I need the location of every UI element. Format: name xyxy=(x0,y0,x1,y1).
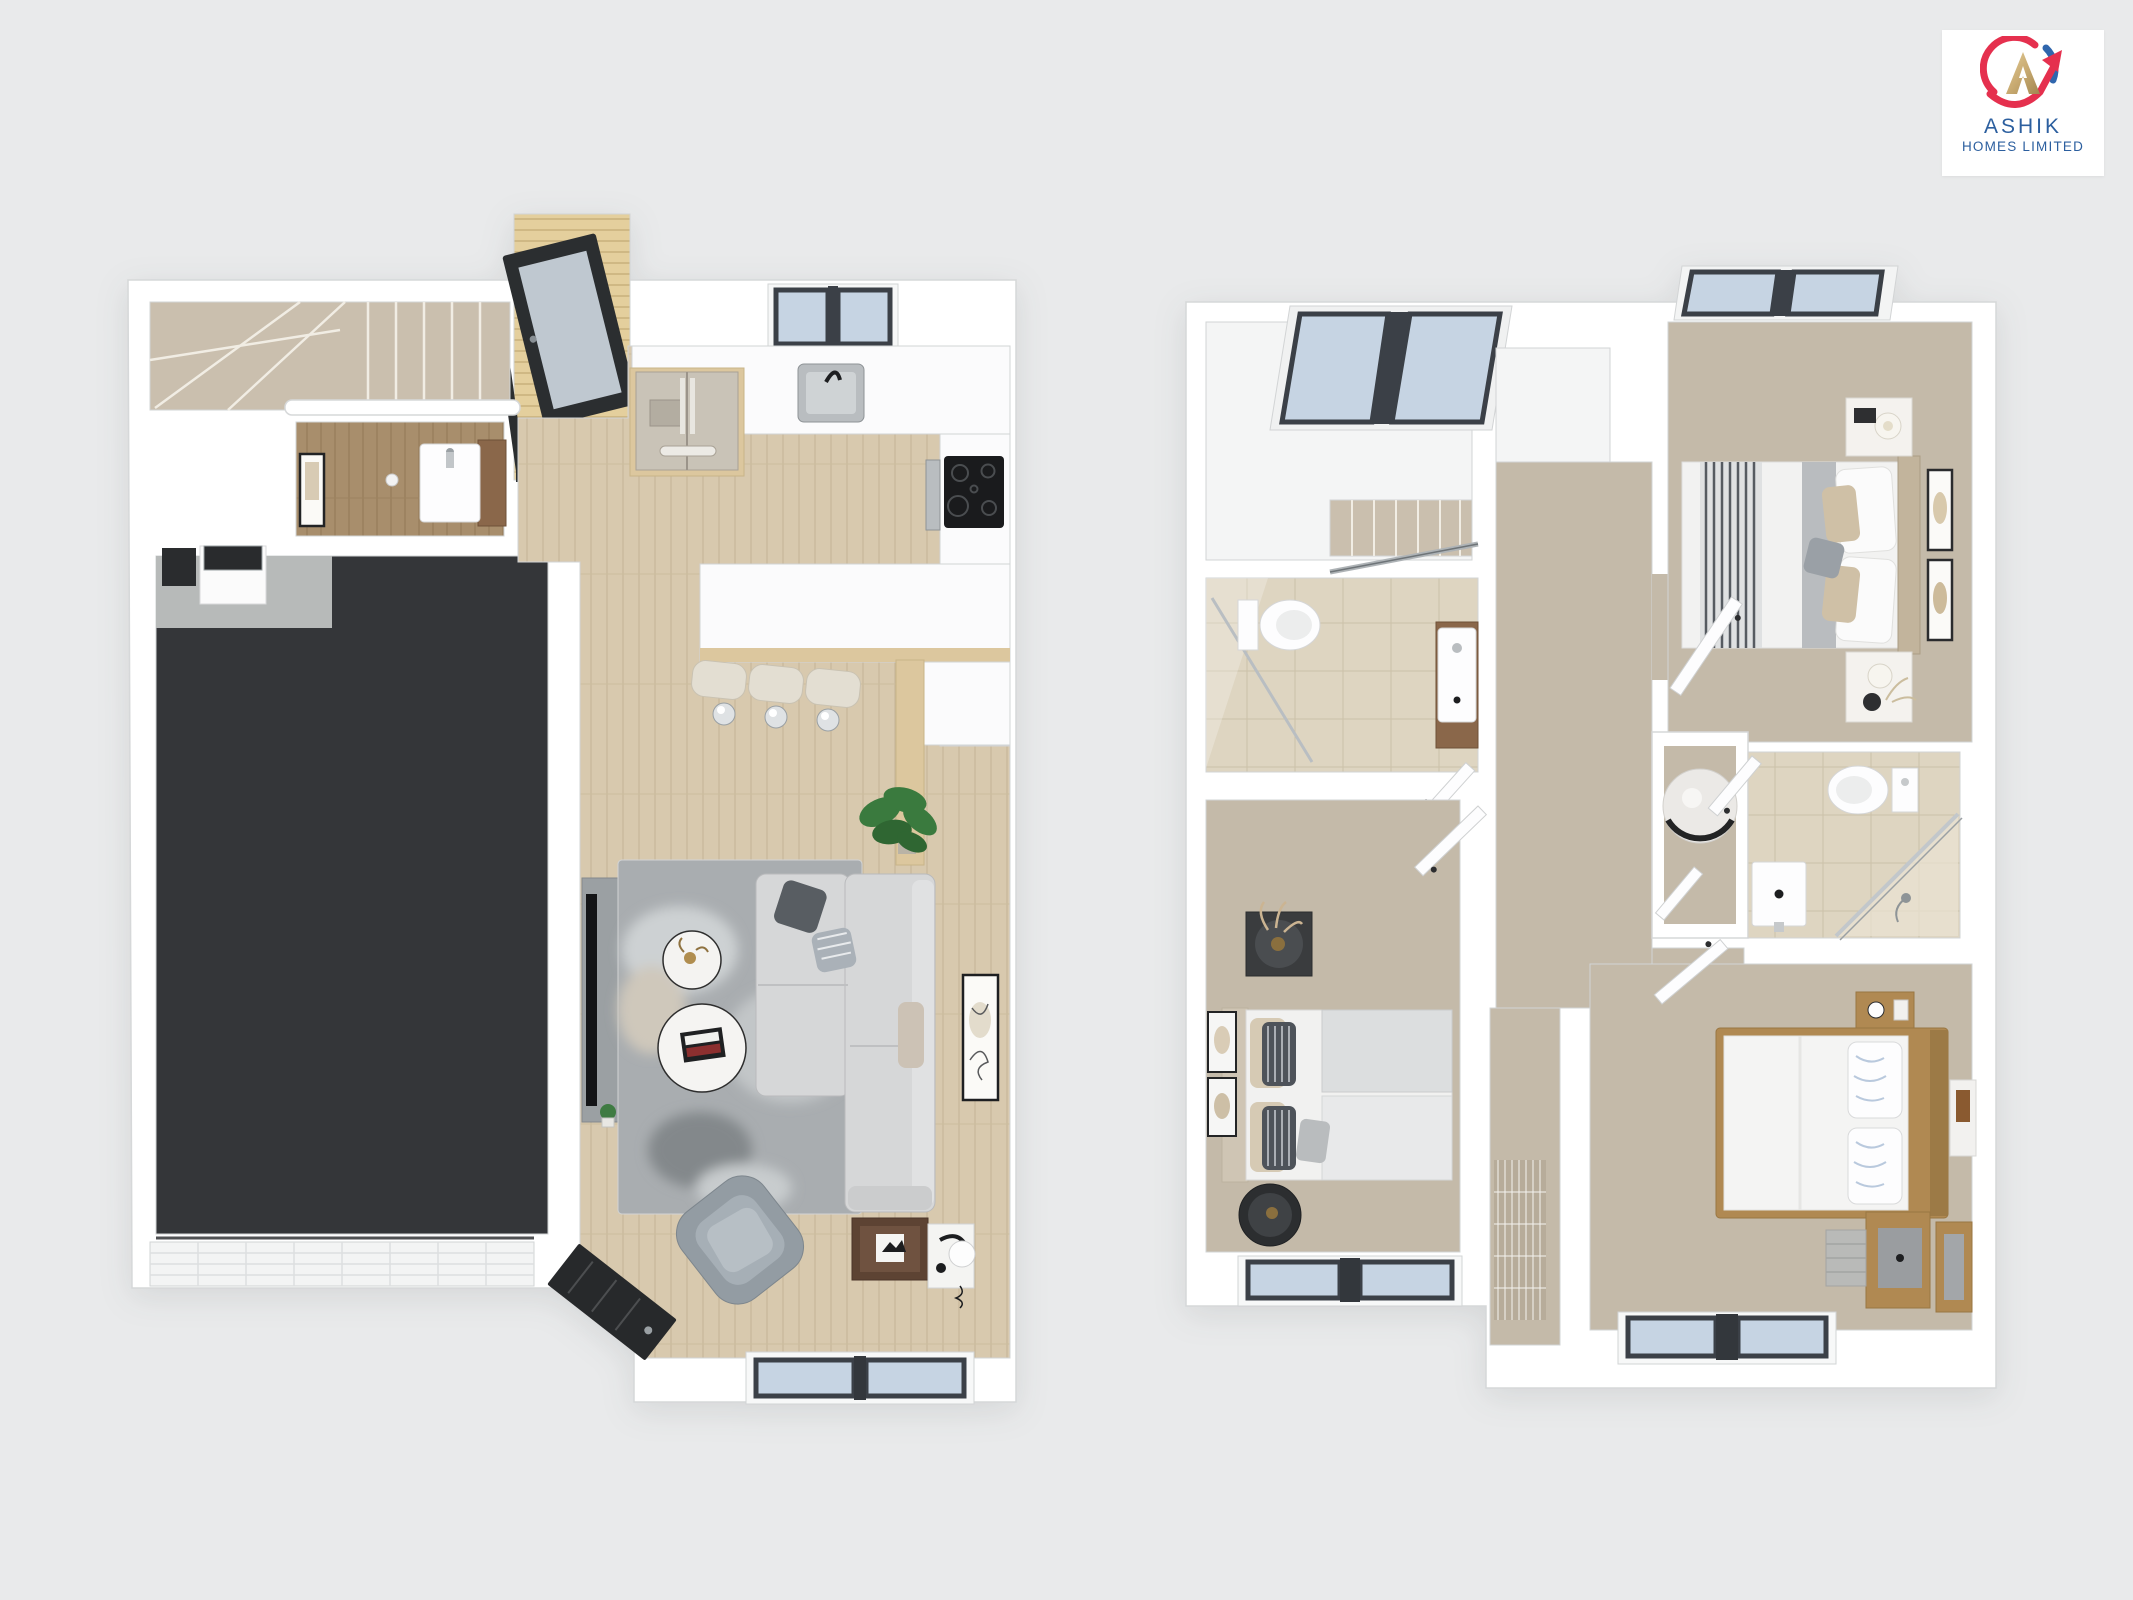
bedroom3-window xyxy=(1618,1312,1836,1364)
ground-floor-plan xyxy=(90,190,1030,1450)
kitchen-window xyxy=(768,284,898,350)
wire-shelving xyxy=(1494,1160,1546,1320)
logo-company-suffix: HOMES LIMITED xyxy=(1962,138,2084,155)
wc-cloakroom xyxy=(296,422,506,536)
hob xyxy=(944,456,1004,528)
sofa-pillow-striped xyxy=(810,926,857,973)
airing-cupboard xyxy=(1652,732,1748,938)
sofa-lumbar-pillow xyxy=(898,1002,924,1068)
living-wall-art xyxy=(963,975,998,1100)
logo-company-name: ASHIK xyxy=(1984,116,2062,138)
wc-vanity-cabinet xyxy=(478,440,506,526)
bedroom3-wall-art xyxy=(1950,1080,1976,1156)
toilet xyxy=(1238,600,1320,650)
bedroom1-nightstand-bottom xyxy=(1846,652,1916,722)
staircase xyxy=(150,302,520,415)
bathroom-sink xyxy=(1438,628,1476,722)
bedroom1-window xyxy=(1674,266,1898,320)
hall-ceiling-light xyxy=(386,474,398,486)
bedroom3 xyxy=(1590,934,1976,1364)
oven xyxy=(926,460,940,530)
living-window xyxy=(746,1352,974,1404)
ensuite-toilet xyxy=(1828,766,1918,814)
bedroom2-bed xyxy=(1222,1008,1452,1182)
bedroom3-bed xyxy=(1716,1028,1948,1218)
tv-media-wall xyxy=(582,878,620,1127)
bedroom2-window xyxy=(1238,1256,1462,1306)
storage-closet xyxy=(1496,348,1610,462)
fridge xyxy=(630,368,744,476)
side-table-wood xyxy=(852,1218,928,1280)
garage xyxy=(150,546,548,1286)
bedroom2-nightstand-round xyxy=(1239,1184,1301,1246)
tv-screen xyxy=(586,894,597,1106)
bedroom2-console-table xyxy=(1246,902,1312,976)
garage-door xyxy=(150,1242,534,1286)
stair-skylight xyxy=(1270,306,1512,430)
logo-monogram-a xyxy=(2006,52,2040,94)
bedroom1-nightstand-top xyxy=(1846,398,1912,456)
company-logo: ASHIK HOMES LIMITED xyxy=(1942,30,2104,176)
consumer-unit xyxy=(162,548,196,586)
bedroom1-headboard xyxy=(1898,456,1920,654)
floorplan-sheet: ASHIK HOMES LIMITED xyxy=(0,0,2133,1600)
bedroom1 xyxy=(1668,322,1972,742)
stairwell xyxy=(1206,306,1512,572)
bedroom3-bench xyxy=(1826,1230,1866,1286)
first-floor-plan xyxy=(1140,250,2030,1420)
bedroom3-nightstand xyxy=(1856,992,1914,1028)
logo-emblem-icon xyxy=(1980,36,2066,116)
bedroom2 xyxy=(1206,800,1491,1306)
stair-rail-wall xyxy=(285,400,520,415)
bedroom3-desk xyxy=(1866,1212,1972,1312)
